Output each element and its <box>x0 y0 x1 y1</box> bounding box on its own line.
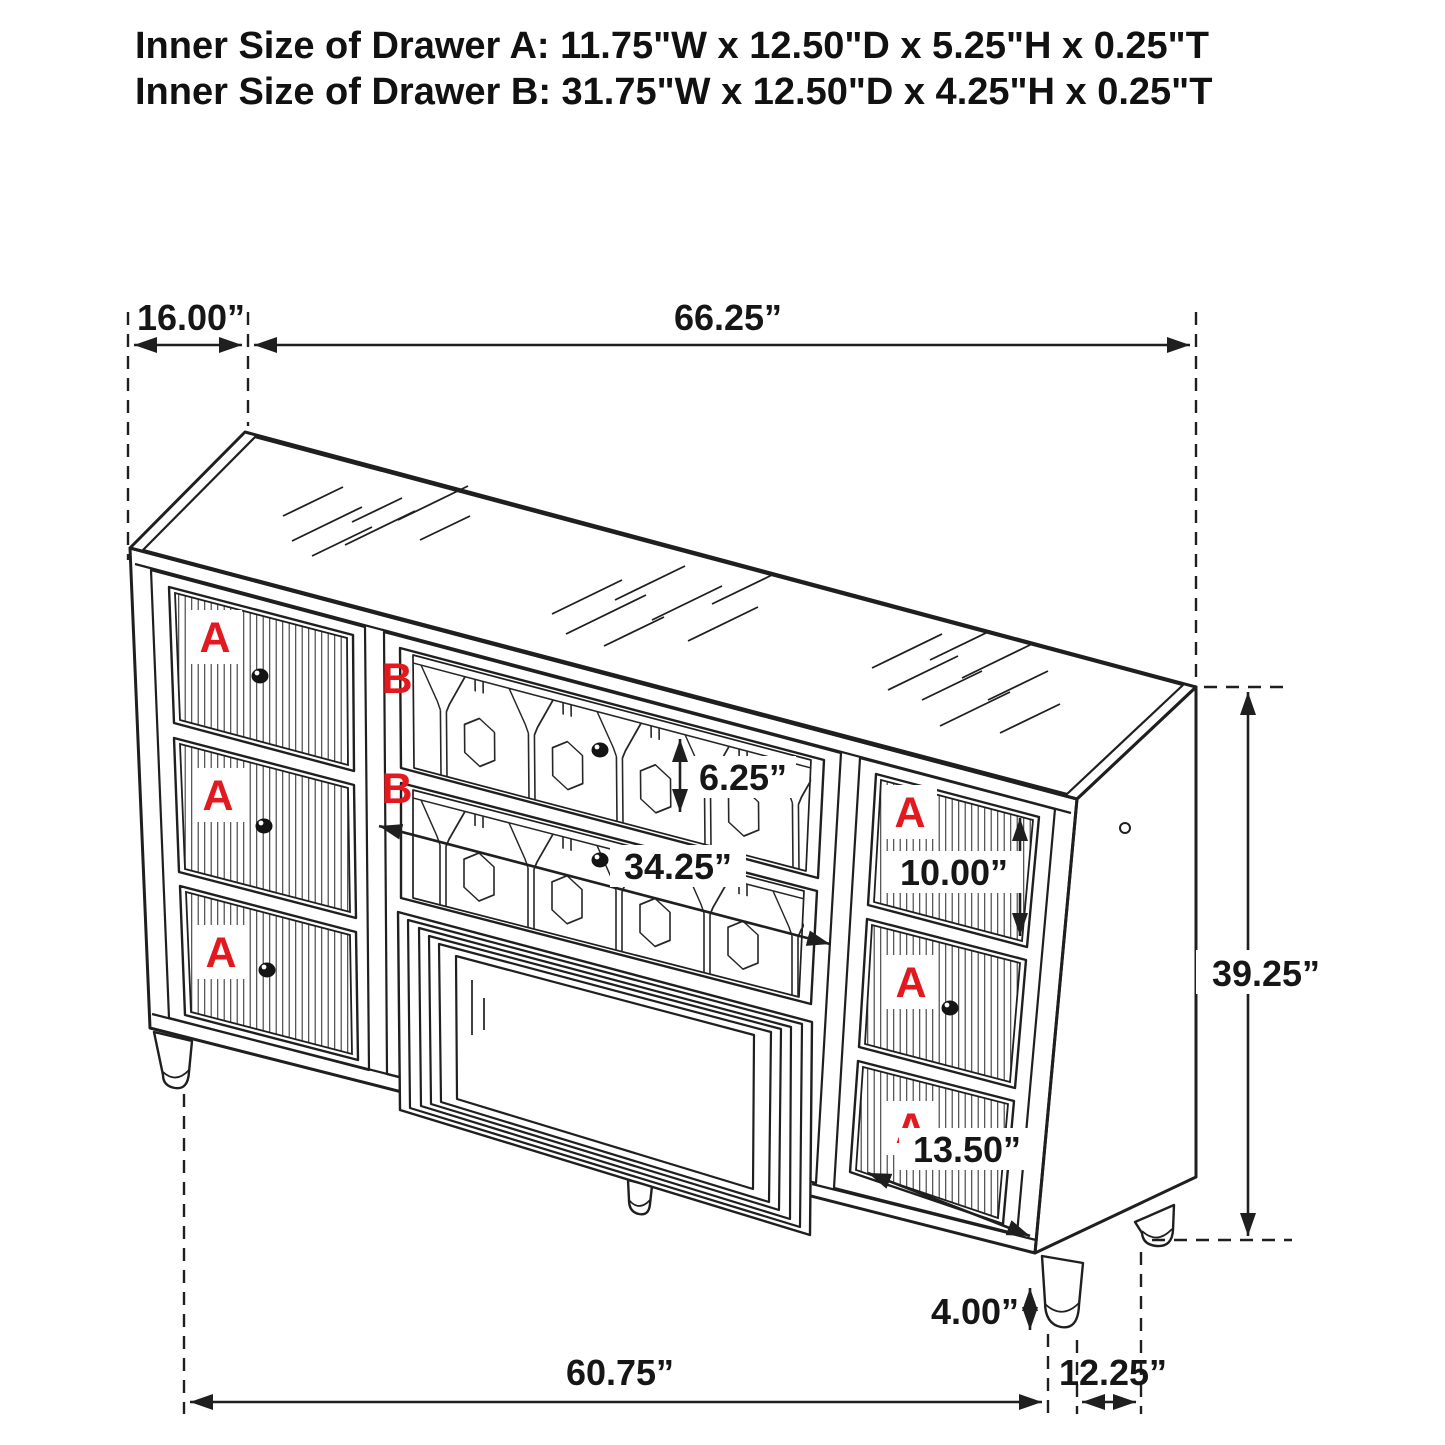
knob-icon <box>592 853 609 868</box>
drawer-b-label: B <box>381 655 412 703</box>
knob-icon <box>592 743 609 758</box>
top-depth-dim: 16.00” <box>137 297 245 338</box>
top-width-dim: 66.25” <box>674 297 782 338</box>
front-right-leg <box>1042 1256 1083 1327</box>
base-width-dim: 60.75” <box>566 1352 674 1393</box>
knob-icon <box>942 1001 959 1016</box>
leg-height-dim: 4.00” <box>931 1291 1019 1332</box>
inner-size-drawer-b-text: Inner Size of Drawer B: 31.75"W x 12.50"… <box>135 71 1212 113</box>
drawer-a-label: A <box>895 959 926 1007</box>
overall-height-dim: 39.25” <box>1212 953 1320 994</box>
inner-size-drawer-a-text: Inner Size of Drawer A: 11.75"W x 12.50"… <box>135 25 1209 67</box>
header: Inner Size of Drawer A: 11.75"W x 12.50"… <box>135 25 1212 113</box>
drawer-a-label: A <box>202 772 233 820</box>
middle-section <box>384 632 841 1235</box>
b-drawer-height-dim: 6.25” <box>699 757 787 798</box>
b-drawer-width-dim: 34.25” <box>624 846 732 887</box>
drawer-a-label: A <box>894 789 925 837</box>
drawer-a-label: A <box>199 614 230 662</box>
furniture-dimension-diagram: Inner Size of Drawer A: 11.75"W x 12.50"… <box>0 0 1445 1445</box>
right-a-drawer-height-dim: 10.00” <box>900 852 1008 893</box>
front-left-leg <box>154 1032 192 1088</box>
right-a-drawer-width-dim: 13.50” <box>913 1129 1021 1170</box>
drawer-b-label: B <box>381 765 412 813</box>
side-depth-dim: 12.25” <box>1059 1352 1167 1393</box>
knob-icon <box>252 669 269 684</box>
knob-icon <box>259 963 276 978</box>
drawer-a-label: A <box>205 929 236 977</box>
side-pin-hole <box>1120 823 1130 833</box>
cabinet-right-side <box>1035 687 1196 1253</box>
dresser-line-drawing: Inner Size of Drawer A: 11.75"W x 12.50"… <box>0 0 1445 1445</box>
knob-icon <box>256 819 273 834</box>
